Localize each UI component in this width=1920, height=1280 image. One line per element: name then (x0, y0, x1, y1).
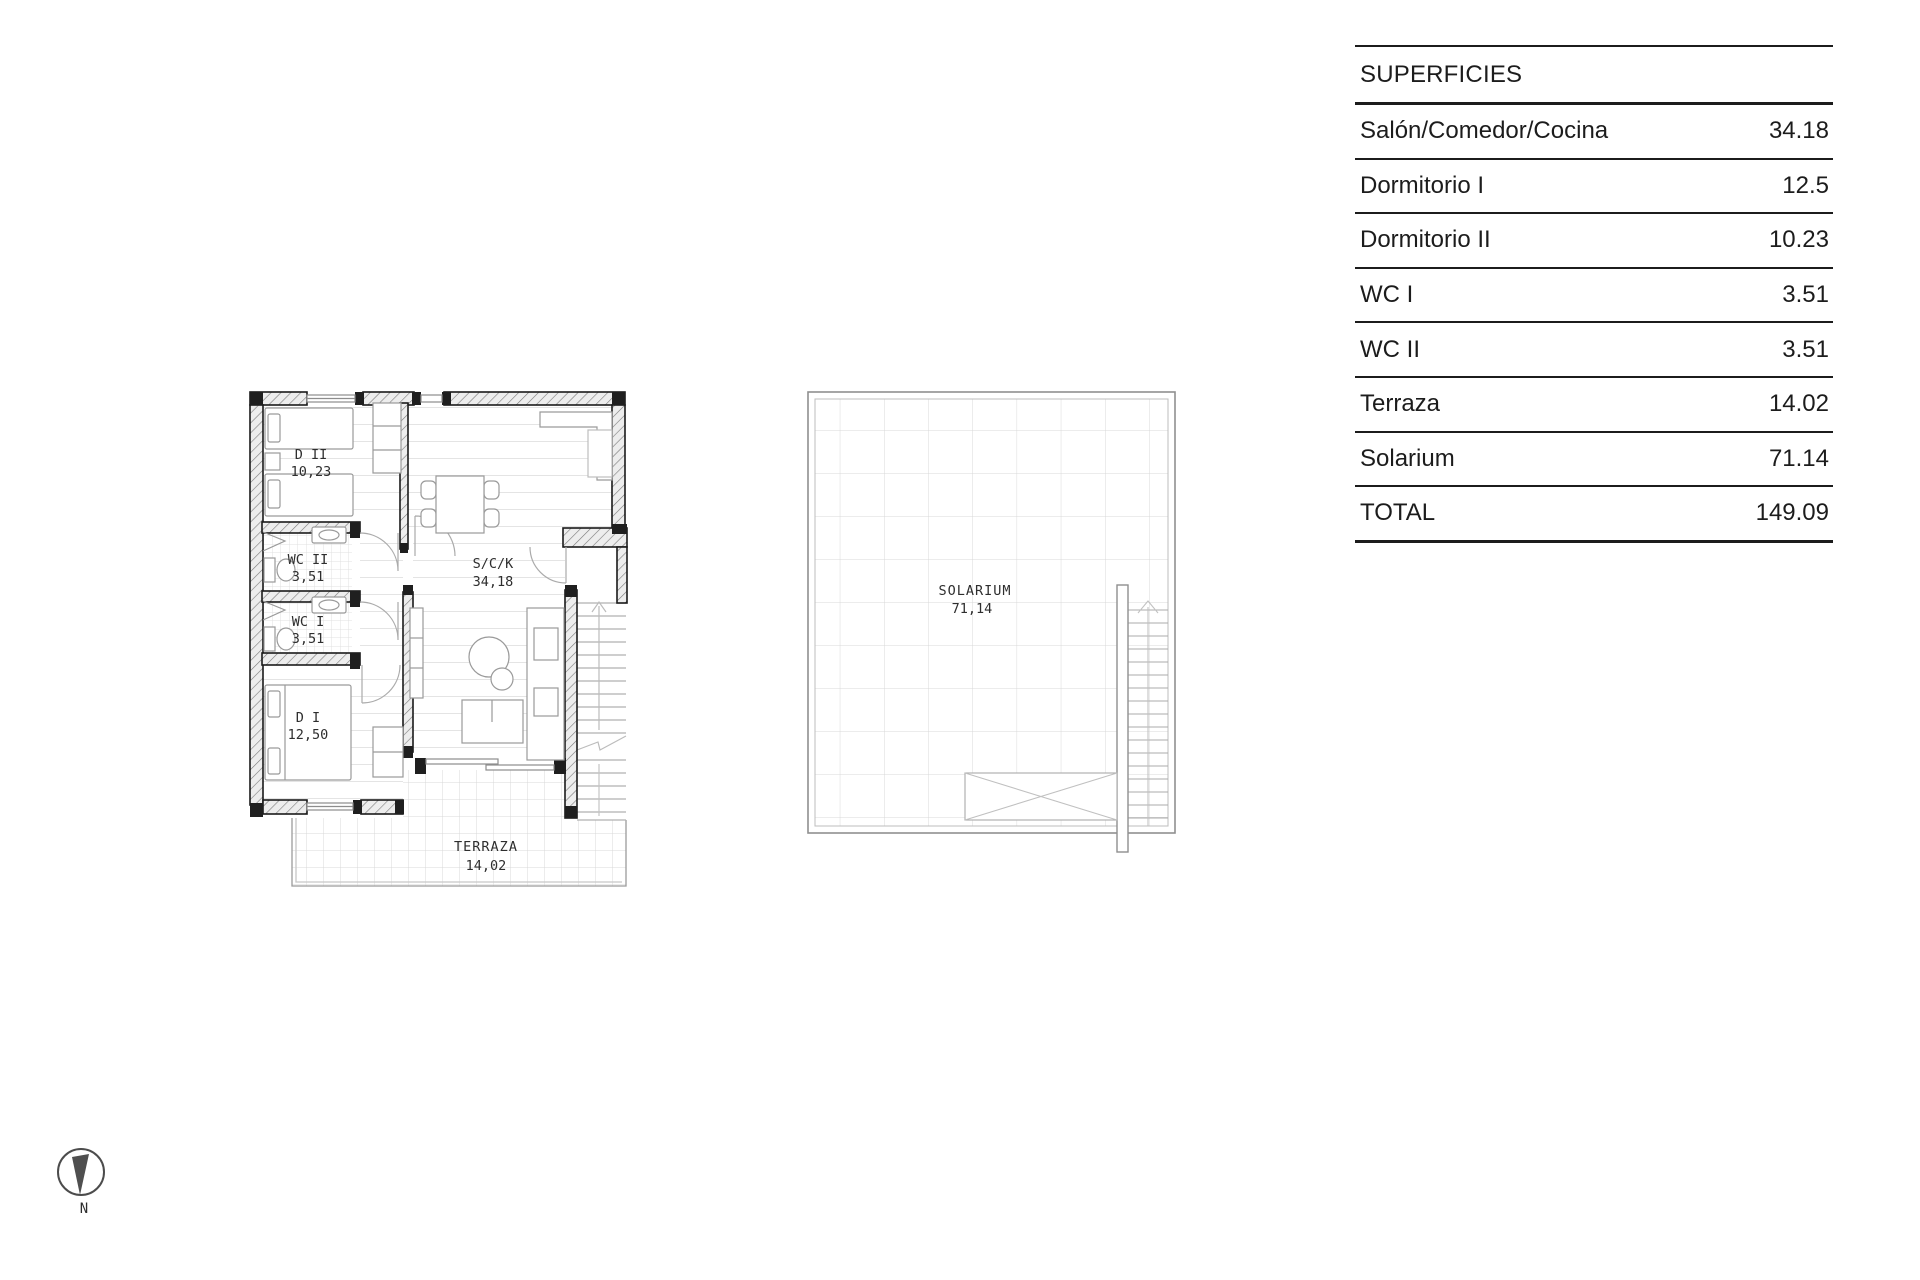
bed-single-2 (265, 474, 353, 516)
room-label-d1: D I (296, 710, 320, 726)
room-area-wc2: 3,51 (292, 569, 325, 585)
room-area-solarium: 71,14 (952, 601, 993, 617)
table-row: Dormitorio I 12.5 (1355, 160, 1833, 215)
row-value: 12.5 (1782, 172, 1833, 200)
room-label-wc2: WC II (288, 552, 329, 568)
north-compass-icon: N (45, 1135, 125, 1230)
table-row: Salón/Comedor/Cocina 34.18 (1355, 105, 1833, 160)
row-label: WC I (1355, 281, 1413, 309)
room-label-d2: D II (295, 447, 328, 463)
row-value: 3.51 (1782, 336, 1833, 364)
row-value: 14.02 (1769, 390, 1833, 418)
row-value: 10.23 (1769, 226, 1833, 254)
room-label-sck: S/C/K (473, 556, 515, 572)
row-label: Salón/Comedor/Cocina (1355, 117, 1608, 145)
room-area-d1: 12,50 (288, 727, 329, 743)
row-label: TOTAL (1355, 499, 1435, 527)
surfaces-table: SUPERFICIES Salón/Comedor/Cocina 34.18 D… (1355, 45, 1833, 543)
wardrobe-d1 (373, 727, 403, 777)
table-row: WC II 3.51 (1355, 323, 1833, 378)
room-area-sck: 34,18 (473, 574, 514, 590)
room-area-d2: 10,23 (291, 464, 332, 480)
row-label: Dormitorio II (1355, 226, 1491, 254)
room-area-terraza: 14,02 (466, 858, 507, 874)
ground-floor-plan: D II 10,23 WC II 3,51 WC I 3,51 D I 12,5… (230, 385, 660, 920)
room-area-wc1: 3,51 (292, 631, 325, 647)
stairs-break-line (577, 736, 626, 750)
bed-single-1 (265, 408, 353, 449)
table-row: Terraza 14.02 (1355, 378, 1833, 433)
compass-north-label: N (80, 1201, 88, 1217)
table-row: Dormitorio II 10.23 (1355, 214, 1833, 269)
compass-needle (72, 1154, 89, 1195)
stairwell-void (965, 773, 1117, 820)
kitchen-counter-right (527, 608, 564, 760)
row-value: 71.14 (1769, 445, 1833, 473)
wall-niche (588, 430, 612, 477)
row-value: 34.18 (1769, 117, 1833, 145)
table-row: Solarium 71.14 (1355, 433, 1833, 488)
row-label: Terraza (1355, 390, 1440, 418)
surfaces-table-header: SUPERFICIES (1355, 47, 1833, 105)
stairs-up-arrow (592, 602, 606, 730)
table-row: TOTAL 149.09 (1355, 487, 1833, 540)
room-label-terraza: TERRAZA (454, 839, 518, 855)
floor-plan-sheet: D II 10,23 WC II 3,51 WC I 3,51 D I 12,5… (0, 0, 1920, 1280)
exterior-stairs (577, 602, 626, 820)
table-row: WC I 3.51 (1355, 269, 1833, 324)
kitchen-island (462, 700, 523, 743)
row-label: Dormitorio I (1355, 172, 1484, 200)
wardrobe (373, 403, 401, 473)
surfaces-table-title: SUPERFICIES (1355, 61, 1522, 89)
room-label-solarium: SOLARIUM (938, 583, 1011, 599)
nightstand (265, 453, 280, 470)
row-label: WC II (1355, 336, 1420, 364)
row-value: 149.09 (1756, 499, 1833, 527)
solarium-plan: SOLARIUM 71,14 (795, 385, 1185, 865)
stair-handrail (1117, 585, 1128, 852)
row-label: Solarium (1355, 445, 1455, 473)
row-value: 3.51 (1782, 281, 1833, 309)
kitchen-tall-units (410, 608, 423, 698)
room-label-wc1: WC I (292, 614, 325, 630)
